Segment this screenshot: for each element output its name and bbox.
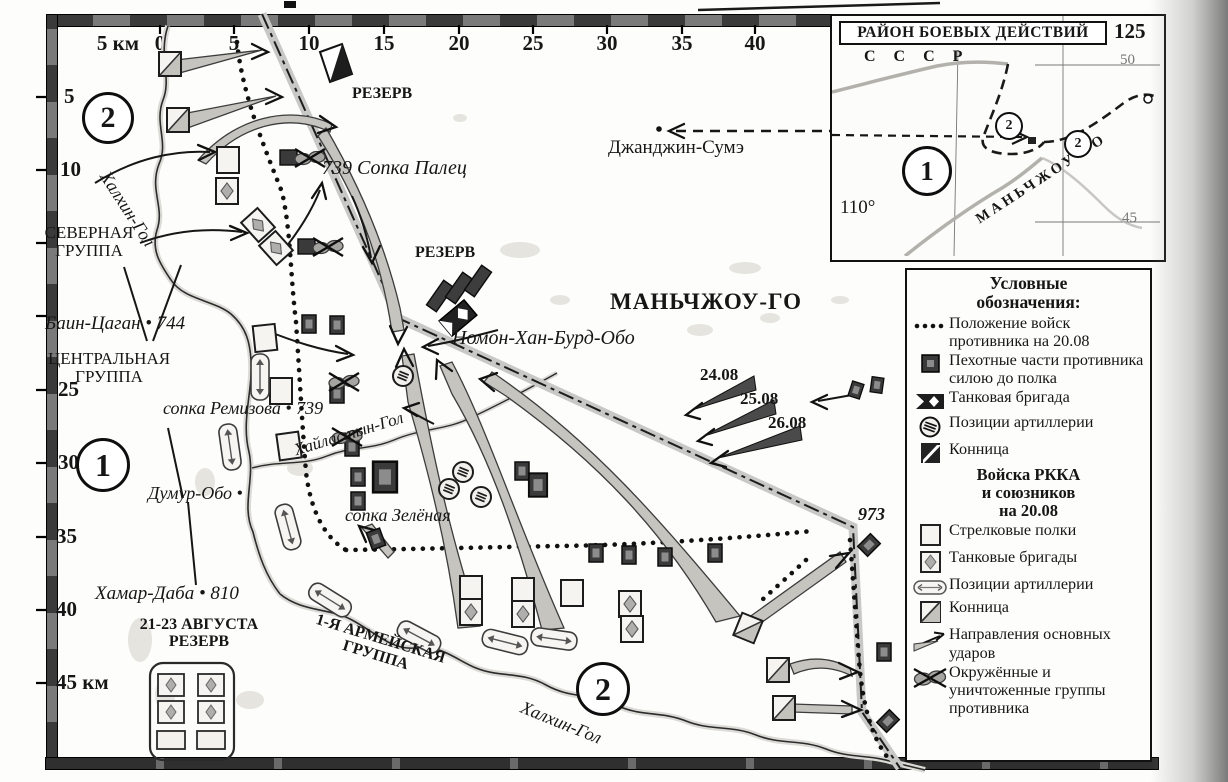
enemy-infantry-symbol <box>858 534 881 557</box>
rifle-regiment-symbol <box>253 324 278 352</box>
artillery-position-symbol <box>481 628 530 657</box>
enemy-artillery-symbol <box>393 366 413 386</box>
tank-brigade-symbol <box>619 591 641 617</box>
tank-brigade-symbol <box>460 599 482 625</box>
artillery-position-symbol <box>530 627 578 651</box>
enemy-position-line-icon <box>911 314 949 334</box>
enemy-infantry-symbol <box>529 473 547 496</box>
inset-rivers <box>832 62 1142 256</box>
legend-item: Позиции артиллерии <box>911 575 1146 597</box>
legend-item: Позиции артиллерии <box>911 413 1146 439</box>
legend-item: Танковая бригада <box>911 388 1146 412</box>
rifle-regiment-icon <box>911 521 949 547</box>
enemy-artillery-icon <box>911 413 949 439</box>
scan-artifact-line <box>698 3 940 10</box>
inset-leader-line <box>832 135 1022 137</box>
tank-brigade-symbol <box>158 701 184 723</box>
reserve-label-top: РЕЗЕРВ <box>352 85 412 102</box>
artillery-position-symbol <box>273 502 302 551</box>
date-label-1: 24.08 <box>700 366 738 384</box>
sopka-remizova-label: сопка Ремизова • 739 <box>163 399 323 418</box>
enemy-cavalry-icon <box>911 440 949 466</box>
rifle-regiment-symbol <box>217 147 239 173</box>
group-badge-south: 2 <box>576 662 630 716</box>
cavalry-symbol <box>773 696 795 720</box>
destroyed-enemy-group-symbol <box>280 149 325 167</box>
tank-brigade-symbol <box>198 701 224 723</box>
inset-longitude-left: 110° <box>840 198 875 219</box>
enemy-infantry-symbol <box>877 643 891 661</box>
tank-brigade-symbol <box>158 674 184 696</box>
enemy-infantry-symbol <box>515 462 529 480</box>
inset-border-point <box>1144 95 1152 103</box>
legend-title: Условные <box>911 274 1146 293</box>
group-badge-north: 2 <box>82 92 134 144</box>
encircled-groups-icon <box>911 663 949 691</box>
legend-item: Положение войск противника на 20.08 <box>911 314 1146 350</box>
date-label-3: 26.08 <box>768 414 806 432</box>
enemy-infantry-symbol <box>658 548 672 566</box>
sopka-palets-label: 739 Сопка Палец <box>322 158 467 180</box>
inset-latitude-bottom: 45 <box>1122 210 1137 226</box>
inset-badge-2a: 2 <box>995 112 1023 140</box>
artillery-position-symbol <box>251 354 269 400</box>
legend-item: Направления основных ударов <box>911 625 1146 661</box>
artillery-position-symbol <box>218 423 242 471</box>
inset-badge-2b: 2 <box>1064 130 1092 158</box>
destroyed-enemy-group-symbol <box>298 238 343 256</box>
enemy-infantry-symbol <box>708 544 722 562</box>
tank-brigade-icon <box>911 548 949 574</box>
legend-item: Окружённые и уничтоженные группы противн… <box>911 663 1146 717</box>
enemy-infantry-symbol <box>373 462 397 493</box>
reserve-label-mid: РЕЗЕРВ <box>415 244 475 261</box>
enemy-infantry-symbol <box>366 528 385 550</box>
inset-title: РАЙОН БОЕВЫХ ДЕЙСТВИЙ <box>839 21 1107 45</box>
khalkhin-gol-battle-map: 5 км 0 5 10 15 20 25 30 35 40 5 10 25 30… <box>0 0 1228 782</box>
tank-brigade-symbol <box>621 616 643 642</box>
tank-brigade-symbol <box>198 674 224 696</box>
legend-item: Конница <box>911 440 1146 466</box>
bain-tsagan-label: Баин-Цаган • 744 <box>45 314 185 335</box>
khamar-daba-label: Хамар-Даба • 810 <box>95 584 239 605</box>
inset-badge-1: 1 <box>902 146 952 196</box>
cavalry-symbol <box>167 108 189 132</box>
enemy-artillery-symbol <box>471 487 491 507</box>
dzhandzhin-sume-point <box>656 126 662 132</box>
legend-item: Пехотные части противника силою до полка <box>911 351 1146 387</box>
inset-latitude-top: 50 <box>1120 52 1135 68</box>
rifle-regiment-symbol <box>197 731 225 749</box>
reserve-units-box <box>150 663 234 760</box>
manchukuo-label: МАНЬЧЖОУ-ГО <box>610 290 802 315</box>
legend-item: Танковые бригады <box>911 548 1146 574</box>
legend-item: Конница <box>911 598 1146 624</box>
dzhandzhin-sume-label: Джанджин-Сумэ <box>608 138 744 159</box>
enemy-infantry-symbol <box>302 315 316 333</box>
inset-overview-map: РАЙОН БОЕВЫХ ДЕЙСТВИЙ 125 С С С Р 110° М… <box>830 14 1166 262</box>
dumur-obo-label: Думур-Обо • <box>148 484 243 503</box>
tsentralnaya-gruppa-label: ЦЕНТРАЛЬНАЯ <box>48 350 170 368</box>
height-973-label: 973 <box>858 505 885 524</box>
enemy-infantry-symbol <box>870 377 884 394</box>
enemy-artillery-symbol <box>453 462 473 482</box>
enemy-infantry-symbol <box>848 381 864 399</box>
legend-item: Стрелковые полки <box>911 521 1146 547</box>
cavalry-symbol <box>767 658 789 682</box>
inset-battle-point <box>1028 137 1036 144</box>
nomon-khan-label: Номон-Хан-Бурд-Обо <box>452 328 635 350</box>
rifle-regiment-symbol <box>561 580 583 606</box>
enemy-infantry-symbol <box>622 546 636 564</box>
legend-rkka-header: Войска РККА <box>911 466 1146 484</box>
reserve-cavalry-flag-symbol <box>320 44 352 82</box>
tank-brigade-symbol <box>216 178 238 204</box>
map-legend: Условные обозначения: Положение войск пр… <box>905 268 1152 762</box>
rifle-regiment-symbol <box>157 731 185 749</box>
cavalry-symbol <box>159 52 181 76</box>
enemy-infantry-symbol <box>877 710 900 733</box>
enemy-infantry-symbol <box>330 316 344 334</box>
enemy-tank-brigade-icon <box>911 388 949 412</box>
scan-artifact-mark <box>284 1 296 8</box>
group-badge-center: 1 <box>76 438 130 492</box>
tank-brigade-symbol <box>512 601 534 627</box>
reserve-august-label: 21-23 АВГУСТА <box>115 616 283 633</box>
sopka-zelyonaya-label: сопка Зелёная <box>345 506 451 525</box>
inset-ussr-label: С С С Р <box>864 48 969 65</box>
enemy-infantry-symbol <box>589 544 603 562</box>
date-label-2: 25.08 <box>740 390 778 408</box>
enemy-infantry-icon <box>911 351 949 375</box>
enemy-infantry-symbol <box>351 468 365 486</box>
attack-direction-icon <box>911 625 949 653</box>
artillery-position-icon <box>911 575 949 597</box>
inset-longitude-right: 125 <box>1114 20 1146 43</box>
enemy-artillery-symbol <box>439 479 459 499</box>
cavalry-icon <box>911 598 949 624</box>
